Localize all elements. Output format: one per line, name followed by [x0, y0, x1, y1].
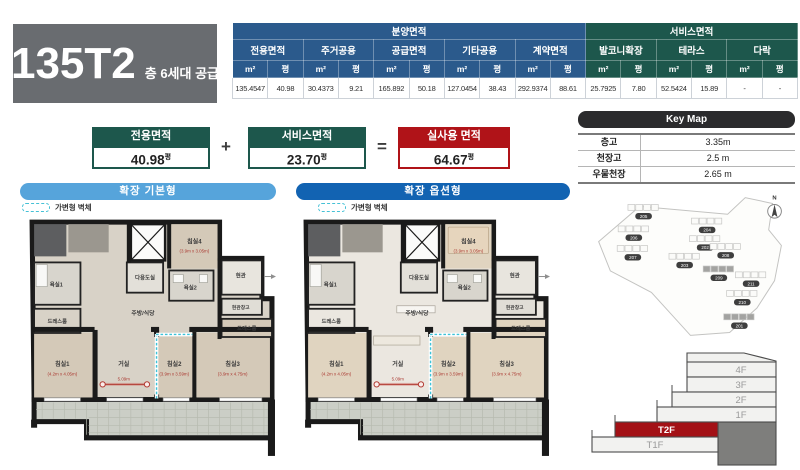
room-label: 현관 [236, 272, 246, 280]
value-cell: 15.89 [692, 78, 727, 99]
floor-row-1F [657, 407, 776, 422]
value-cell: 165.892 [374, 78, 409, 99]
variable-wall-swatch [22, 203, 50, 212]
room-dim-label: (3.9m x 3.59m) [159, 371, 189, 376]
floor-row-3F [687, 377, 776, 392]
building-footprint [739, 314, 746, 320]
window [318, 398, 354, 401]
keymap-row-value: 2.5 m [641, 151, 795, 166]
room-label: 드레스룸 [511, 324, 530, 332]
wall [306, 327, 368, 332]
building-footprint [642, 226, 649, 232]
room-dim-label: 5.09m [118, 376, 131, 381]
summary-service-unit: 평 [321, 154, 327, 161]
building-footprint [742, 290, 749, 296]
floor-plan-basic: 침실4(3.9m x 3.05m)욕실1다용도실욕실2현관현관창고드레스룸드레스… [22, 212, 276, 462]
keymap-row-value: 2.65 m [641, 167, 795, 182]
room-dim-label: 5.09m [392, 376, 405, 381]
building-footprint [618, 226, 625, 232]
building-footprint [692, 253, 699, 259]
room-label: 드레스룸 [322, 317, 341, 325]
value-cell: 135.4547 [233, 78, 268, 99]
group-header-sale-area: 분양면적 [233, 23, 586, 40]
variable-wall-swatch [318, 203, 346, 212]
room-label: 침실2 [441, 360, 456, 368]
room-label: 주방/식당 [131, 309, 155, 317]
plan-info-sheet: 135T2 층 6세대 공급 분양면적 서비스면적 전용면적 주거공용 공급면적… [0, 0, 800, 470]
wall [93, 330, 98, 401]
area-table: 분양면적 서비스면적 전용면적 주거공용 공급면적 기타공용 계약면적 발코니확… [232, 22, 798, 99]
summary-actual-area: 실사용 면적 64.67평 [398, 127, 510, 169]
col-exclusive: 전용면적 [233, 40, 304, 61]
unit-m2: m² [374, 61, 409, 78]
wall [268, 399, 275, 455]
tab-plan-basic: 확장 기본형 [20, 183, 276, 200]
building-number: 208 [722, 253, 730, 258]
value-cell: - [727, 78, 762, 99]
building-footprint [707, 218, 714, 224]
room-label: 침실4 [187, 237, 202, 245]
building-footprint [732, 314, 739, 320]
building-footprint [691, 218, 698, 224]
building-number: 202 [701, 245, 709, 250]
fixture [36, 264, 47, 286]
room-label: 침실2 [167, 360, 182, 368]
keymap-row-label: 우물천장 [578, 167, 641, 182]
wall [463, 327, 546, 332]
group-header-service-area: 서비스면적 [586, 23, 798, 40]
shaft-block [308, 224, 340, 256]
room-label: 욕실1 [324, 281, 337, 289]
unit-py: 평 [762, 61, 797, 78]
building-footprint [743, 272, 750, 278]
building-footprint [727, 290, 734, 296]
plan-graphic [144, 382, 149, 387]
keymap-row: 우물천장 2.65 m [578, 167, 795, 182]
wall [127, 224, 131, 262]
keymap-row-label: 층고 [578, 135, 641, 150]
room-dim-label: (3.9m x 3.05m) [179, 248, 209, 253]
unit-py: 평 [621, 61, 656, 78]
floor-label: T2F [658, 425, 675, 436]
keymap-title: Key Map [578, 111, 795, 128]
fixture [173, 275, 183, 283]
building-footprint [690, 236, 697, 242]
room-label: 현관창고 [232, 304, 250, 311]
building-footprint [734, 290, 741, 296]
value-cell: - [762, 78, 797, 99]
col-attic: 다락 [727, 40, 798, 61]
wall [167, 224, 171, 268]
building-footprint [715, 218, 722, 224]
legend-label: 가변형 벽체 [351, 202, 388, 213]
floor-label: 3F [735, 380, 746, 391]
floor-row-4F [687, 362, 776, 377]
building-number: 206 [630, 235, 638, 240]
room-label: 거실 [392, 360, 404, 368]
col-shared-residential: 주거공용 [303, 40, 374, 61]
room-dim-label: (4.2m x 4.05m) [47, 371, 77, 376]
keymap-row-value: 3.35m [641, 135, 795, 150]
building-footprint [651, 204, 658, 210]
bedroom-floor [171, 224, 217, 268]
floor-label: T1F [647, 440, 664, 451]
building-footprint [734, 244, 741, 250]
room-dim-label: (3.9m x 4.75m) [492, 371, 522, 376]
building-footprint [699, 218, 706, 224]
value-cell: 9.21 [338, 78, 373, 99]
building-footprint [724, 314, 731, 320]
room-label: 욕실1 [50, 281, 63, 289]
fixture [447, 275, 457, 283]
legend-variable-wall: 가변형 벽체 [22, 202, 92, 212]
unit-m2: m² [233, 61, 268, 78]
floor-row-2F [672, 392, 776, 407]
summary-exclusive-label: 전용면적 [92, 127, 210, 146]
col-supply: 공급면적 [374, 40, 445, 61]
plan-graphic [418, 382, 423, 387]
floor-label: 2F [735, 395, 746, 406]
col-other-shared: 기타공용 [444, 40, 515, 61]
elevator [131, 224, 165, 260]
room-dim-label: (4.2m x 4.05m) [321, 371, 351, 376]
room-label: 욕실2 [458, 284, 471, 292]
floor-plan-option: 침실4(3.9m x 3.05m)욕실1다용도실욕실2현관현관창고드레스룸드레스… [296, 212, 550, 462]
entry-arrow-head [271, 274, 276, 279]
building-number: 211 [748, 281, 756, 286]
unit-py: 평 [409, 61, 444, 78]
value-cell: 40.98 [268, 78, 303, 99]
value-cell: 30.4373 [303, 78, 338, 99]
ground-block [718, 422, 776, 465]
value-cell: 50.18 [409, 78, 444, 99]
value-cell: 38.43 [480, 78, 515, 99]
building-footprint [713, 236, 720, 242]
fixture [473, 275, 481, 283]
col-terrace: 테라스 [656, 40, 727, 61]
room-label: 침실3 [499, 360, 514, 368]
elevator [405, 224, 439, 260]
legend-label: 가변형 벽체 [55, 202, 92, 213]
building-footprint [669, 253, 676, 259]
site-map: 205206207203204202208209211210201N [583, 188, 798, 346]
building-footprint [710, 244, 717, 250]
summary-exclusive-area: 전용면적 40.98평 [92, 127, 210, 169]
wall [492, 258, 496, 339]
summary-actual-label: 실사용 면적 [398, 127, 510, 146]
window [494, 398, 536, 401]
building-footprint [636, 204, 643, 210]
tab-plan-option: 확장 옵션형 [296, 183, 570, 200]
window [381, 398, 417, 401]
room-label: 드레스룸 [48, 317, 67, 325]
col-balcony: 발코니확장 [586, 40, 657, 61]
window [220, 398, 262, 401]
summary-exclusive-unit: 평 [165, 154, 171, 161]
wall [32, 327, 94, 332]
building-footprint [628, 204, 635, 210]
building-footprint [759, 272, 766, 278]
building-footprint [703, 266, 710, 272]
building-footprint [617, 246, 624, 252]
building-footprint [633, 246, 640, 252]
wall [189, 327, 272, 332]
unit-py: 평 [480, 61, 515, 78]
wall [305, 420, 311, 428]
wall [31, 420, 37, 428]
building-footprint [641, 246, 648, 252]
value-cell: 52.5424 [656, 78, 691, 99]
room-label: 주방/식당 [405, 309, 429, 317]
wall [367, 330, 372, 401]
unit-m2: m² [586, 61, 621, 78]
building-footprint [697, 236, 704, 242]
building-footprint [727, 266, 734, 272]
building-footprint [677, 253, 684, 259]
fixture [310, 264, 321, 286]
stair-block [68, 224, 108, 252]
building-footprint [634, 226, 641, 232]
window [107, 398, 143, 401]
building-footprint [644, 204, 651, 210]
unit-m2: m² [303, 61, 338, 78]
wall [542, 399, 549, 455]
unit-m2: m² [444, 61, 479, 78]
building-number: 201 [736, 323, 744, 328]
summary-service-label: 서비스면적 [248, 127, 366, 146]
building-footprint [719, 266, 726, 272]
building-footprint [711, 266, 718, 272]
floor-label: 1F [735, 410, 746, 421]
value-cell: 25.7925 [586, 78, 621, 99]
room-dim-label: (3.9m x 3.59m) [433, 371, 463, 376]
room-label: 드레스룸 [237, 324, 256, 332]
value-cell: 292.9374 [515, 78, 550, 99]
unit-supply-count: 층 6세대 공급 [145, 63, 219, 82]
room-label: 침실1 [55, 360, 70, 368]
unit-m2: m² [727, 61, 762, 78]
building-number: 207 [629, 255, 637, 260]
room-label: 욕실2 [184, 284, 197, 292]
unit-py: 평 [268, 61, 303, 78]
wall [401, 224, 405, 262]
floor-label: 4F [735, 365, 746, 376]
building-footprint [747, 314, 754, 320]
building-footprint [685, 253, 692, 259]
building-footprint [625, 246, 632, 252]
building-number: 209 [715, 276, 723, 281]
unit-m2: m² [515, 61, 550, 78]
building-number: 210 [739, 300, 747, 305]
building-number: 203 [681, 263, 689, 268]
unit-py: 평 [338, 61, 373, 78]
building-footprint [750, 290, 757, 296]
unit-m2: m² [656, 61, 691, 78]
window [437, 398, 463, 401]
wall [218, 258, 222, 339]
summary-actual-value: 64.67 [434, 153, 468, 168]
plus-sign: + [221, 137, 231, 157]
stair-block [342, 224, 382, 252]
room-dim-label: (3.9m x 3.05m) [453, 248, 483, 253]
unit-type-block: 135T2 층 6세대 공급 [13, 24, 217, 103]
room-label: 침실4 [461, 237, 476, 245]
window [44, 398, 80, 401]
room-label: 거실 [118, 360, 130, 368]
col-contract: 계약면적 [515, 40, 586, 61]
building-footprint [626, 226, 633, 232]
room-label: 침실1 [329, 360, 344, 368]
value-cell: 7.80 [621, 78, 656, 99]
room-label: 다용도실 [135, 274, 155, 282]
wall [192, 332, 196, 401]
floor-stack-diagram: 4F3F2F1FT2FT1F [588, 345, 800, 467]
building-number: 204 [703, 228, 711, 233]
building-footprint [718, 244, 725, 250]
unit-type-code: 135T2 [11, 42, 136, 86]
keymap-row-label: 천장고 [578, 151, 641, 166]
keymap-row: 층고 3.35m [578, 135, 795, 151]
summary-actual-unit: 평 [468, 154, 474, 161]
building-footprint [726, 244, 733, 250]
room-dim-label: (3.9m x 4.75m) [218, 371, 248, 376]
building-footprint [751, 272, 758, 278]
room-label: 현관 [510, 272, 520, 280]
summary-service-area: 서비스면적 23.70평 [248, 127, 366, 169]
shaft-block [34, 224, 66, 256]
unit-py: 평 [550, 61, 585, 78]
building-footprint [735, 272, 742, 278]
equals-sign: = [377, 137, 387, 157]
building-footprint [705, 236, 712, 242]
fixture [199, 275, 207, 283]
entry-arrow-head [545, 274, 550, 279]
room-label: 현관창고 [506, 304, 524, 311]
window [163, 398, 189, 401]
unit-py: 평 [692, 61, 727, 78]
value-cell: 127.0454 [444, 78, 479, 99]
value-cell: 88.61 [550, 78, 585, 99]
summary-service-value: 23.70 [287, 153, 321, 168]
compass-label: N [772, 196, 776, 202]
wall [441, 224, 445, 268]
building-number: 205 [640, 214, 648, 219]
keymap-row: 천장고 2.5 m [578, 151, 795, 167]
room-label: 다용도실 [409, 274, 429, 282]
summary-exclusive-value: 40.98 [131, 153, 165, 168]
wall [466, 332, 470, 401]
legend-variable-wall: 가변형 벽체 [318, 202, 388, 212]
plan-graphic [100, 382, 105, 387]
room-label: 침실3 [225, 360, 240, 368]
roof [687, 353, 776, 362]
keymap-table: 층고 3.35m 천장고 2.5 m 우물천장 2.65 m [578, 133, 795, 184]
sofa [374, 336, 420, 345]
plan-graphic [374, 382, 379, 387]
